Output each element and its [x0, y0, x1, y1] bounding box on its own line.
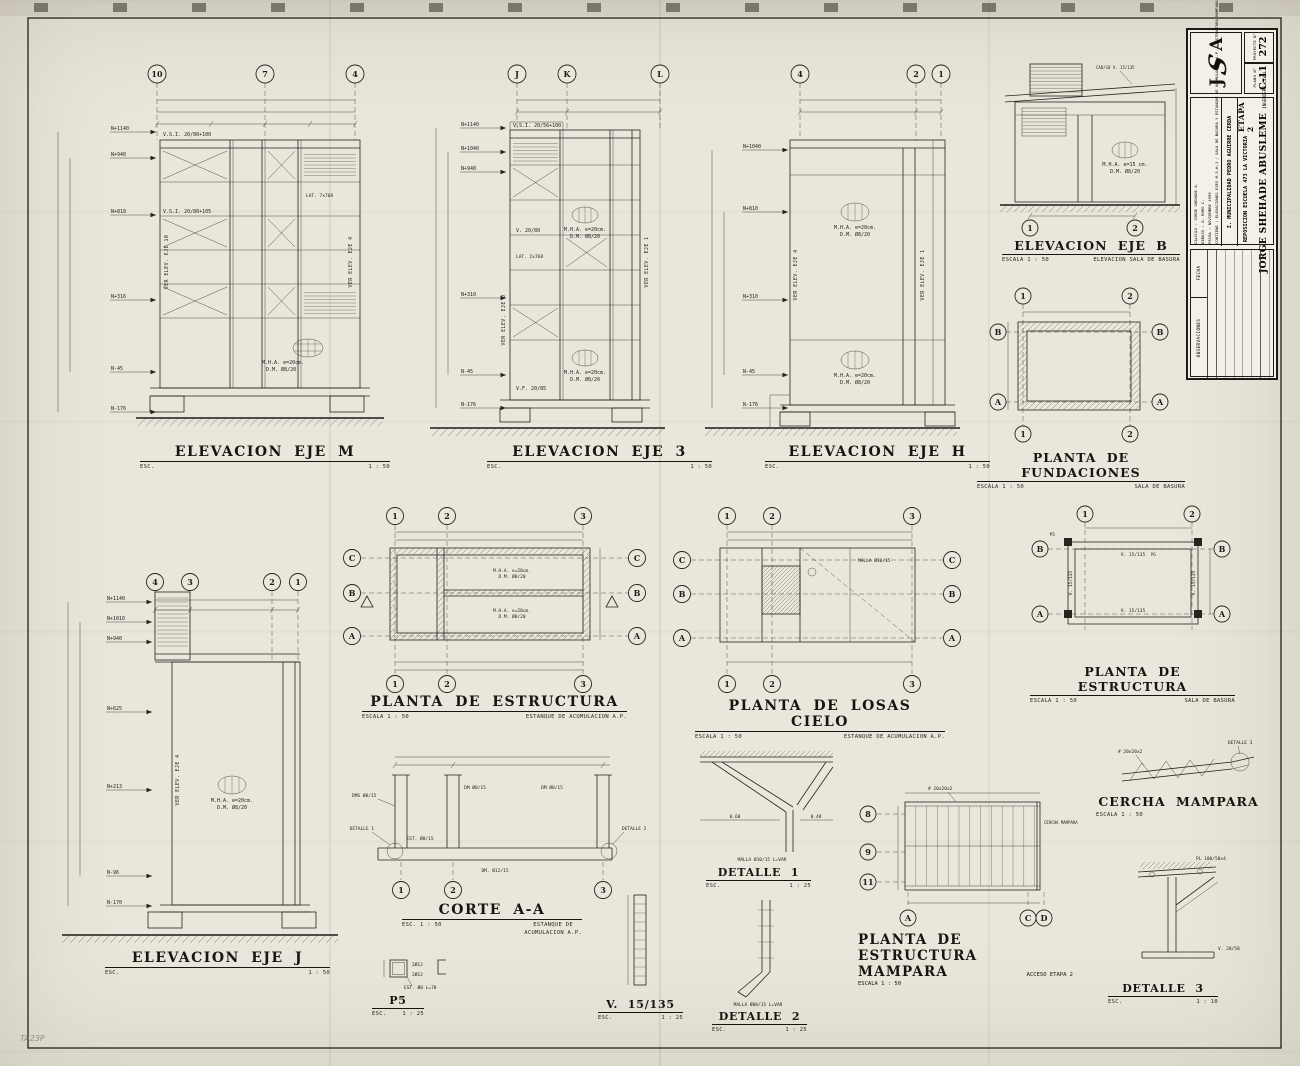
esc-label: ESC. [372, 1010, 386, 1018]
beam-note: V.S.I. 20/80+105 [163, 209, 211, 215]
svg-text:3: 3 [580, 511, 586, 521]
mha-note: D.M. Ø8/20 [570, 233, 600, 240]
grid-bubbles: 12 [1077, 506, 1200, 522]
escala-label: ESCALA 1 : 50 [1002, 256, 1049, 264]
scale-value: 1 : 25 [789, 882, 811, 890]
observaciones-column-header: OBSERVACIONES [1197, 319, 1202, 358]
contiene-field: CONTIENE : ELEVACIONES EJES M-3-H-J / SA… [1214, 0, 1219, 244]
svg-text:A: A [678, 633, 686, 643]
rebar-note: DMS Ø8/15 [352, 792, 377, 799]
grid-bubbles: CBA [344, 550, 361, 645]
panel-title: CORTE A-A [402, 902, 582, 920]
mha-note: D.M. Ø8/20 [217, 804, 247, 811]
svg-text:N+810: N+810 [743, 206, 758, 212]
subtitle: ESTANQUE DE ACUMULACION A.P. [844, 733, 945, 741]
lat-note: LAT. 7x768 [306, 193, 333, 199]
svg-text:1: 1 [1020, 291, 1026, 301]
hatch-lateral [513, 144, 558, 162]
hatch-lateral [304, 155, 356, 176]
panel-title: DETALLE 2 [712, 1010, 807, 1025]
wall-hatch [583, 555, 590, 633]
hatch-window [1022, 112, 1066, 133]
cercha-note: CERCHA MAMPARA [1044, 820, 1078, 825]
cad-note: CAD/10 V. 15/135 [1096, 65, 1135, 70]
esc-label: ESC. [765, 463, 779, 471]
svg-text:2: 2 [913, 69, 919, 79]
svg-text:N+1040: N+1040 [743, 144, 761, 150]
svg-text:A: A [904, 913, 912, 923]
mha-note: M.H.A. e=20cm. [211, 798, 253, 804]
svg-text:3: 3 [600, 885, 606, 895]
panel-title: ELEVACION EJE 3 [487, 444, 712, 462]
wall-hatch [1018, 322, 1140, 331]
viga-note: V. 15/135 [1068, 571, 1074, 596]
svg-text:3: 3 [580, 679, 586, 689]
svg-text:2: 2 [1127, 429, 1133, 439]
svg-text:8: 8 [865, 809, 871, 819]
svg-text:N+940: N+940 [461, 166, 476, 172]
dim-label: 0.60 [730, 814, 741, 820]
column-p5 [1194, 538, 1202, 546]
svg-text:4: 4 [797, 69, 803, 79]
mha-note: M.H.A. e=20cm. [564, 227, 606, 233]
detail-ref: DETALLE 2 [622, 826, 647, 832]
cliente-strip: I. MUNICIPALIDAD PEDRO AGUIRRE CERDA [1221, 98, 1237, 246]
profile-note: # 20x20x2 [1118, 749, 1143, 755]
title-detalle-1: DETALLE 1 ESC.1 : 25 [706, 866, 811, 890]
svg-text:N-176: N-176 [461, 402, 476, 408]
svg-text:4: 4 [352, 69, 358, 79]
profile-note: # 20x20x2 [928, 786, 953, 792]
subtitle: SALA DE BASURA [1134, 483, 1185, 491]
svg-text:N+1140: N+1140 [461, 122, 479, 128]
title-planta-mampara: PLANTA DE ESTRUCTURA MAMPARA ACCESO ETAP… [858, 932, 1073, 987]
grid-bubbles: 1074 [148, 65, 364, 83]
grid-bubbles: 123 [387, 676, 592, 693]
panel-title: PLANTA DE ESTRUCTURA [1030, 664, 1235, 696]
esc-label: ESC. [1108, 998, 1122, 1006]
rebar-note: 2Ø12 [412, 971, 423, 978]
svg-text:N+310: N+310 [743, 294, 758, 300]
hatch-parapet [1030, 68, 1082, 93]
escala-label: ESCALA 1 : 50 [977, 483, 1024, 491]
level-markers: N+1140N+1040N+940N+310N-45N-176 [460, 122, 506, 410]
corner-pencil-mark: TA23P [20, 1034, 45, 1043]
hatch-slab [700, 751, 833, 757]
title-elev-3: ELEVACION EJE 3 ESC.1 : 50 [487, 444, 712, 471]
proyecto-no-label: PROYECTO N° [1252, 33, 1257, 60]
panel-title: ELEVACION EJE B [1002, 238, 1180, 255]
pg-ref: PG [1151, 552, 1156, 557]
ver-elev-note: VER ELEV. EJE 10 [164, 235, 170, 290]
grid-bubbles: 8911 [860, 806, 876, 890]
beam-note: V.S.I. 20/80+100 [163, 132, 211, 138]
panel-planta-mampara: 8911 # 20x20x2 CERCHA MAMPARA ACD [860, 786, 1078, 926]
panel-planta-estructura-estanque: 123 123 CBA CBA M.H.A. e=20cm. D.M. Ø8/2… [344, 508, 646, 693]
title-elev-h: ELEVACION EJE H ESC.1 : 50 [765, 444, 990, 471]
svg-text:N-176: N-176 [743, 402, 758, 408]
title-corte-aa: CORTE A-A ESC. 1 : 50 ESTANQUE DEACUMULA… [402, 902, 582, 938]
panel-title: ELEVACION EJE H [765, 444, 990, 462]
svg-text:B: B [1219, 544, 1226, 554]
beam-note: V. 20/80 [516, 228, 540, 234]
svg-text:1: 1 [398, 885, 404, 895]
panel-p5: 2Ø12 2Ø12 EST. Ø8 L=70 [384, 960, 446, 991]
ver-elev-note: VER ELEV. EJE 4 [793, 249, 799, 300]
grid-bubbles: BA [1214, 541, 1230, 622]
hatch-parapet [157, 598, 188, 646]
svg-text:2: 2 [769, 511, 775, 521]
main-info-box: JORGE SHEHADE ABUSLEME INGENIERO CIVIL R… [1190, 97, 1274, 245]
svg-text:1: 1 [392, 679, 398, 689]
panel-title: PLANTA DE ESTRUCTURA [858, 932, 1073, 964]
title-detalle-2: DETALLE 2 ESC.1 : 25 [712, 1010, 807, 1034]
title-planta-fundaciones: PLANTA DE FUNDACIONES ESCALA 1 : 50SALA … [977, 450, 1185, 491]
rebar-note: DM Ø8/15 [464, 784, 486, 791]
drawing-sheet: 1074 M.H.A. e=20cm. [0, 0, 1300, 1066]
title-block: J S A PROYECTO N° 272 PLANO N° C-11 JO [1186, 28, 1278, 380]
grid-bubbles: BA [1152, 324, 1168, 410]
drawing-linework: 1074 M.H.A. e=20cm. [0, 0, 1300, 1066]
esc-label: ESC. [105, 969, 119, 977]
rebar-note: DM Ø8/15 [541, 784, 563, 791]
wall-hatch [437, 555, 444, 633]
svg-text:2: 2 [269, 577, 275, 587]
svg-text:N+1010: N+1010 [107, 616, 125, 622]
mha-note: M.H.A. e=20cm. [493, 568, 531, 574]
svg-text:A: A [1218, 609, 1226, 619]
fields-strip: CALCULO : JORGE SHEHADE A. DIBUJO : A. R… [1191, 98, 1221, 246]
escala-label: ESCALA 1 : 50 [858, 981, 1073, 987]
panel-title: ELEVACION EJE M [140, 444, 390, 462]
panel-elevacion-eje-3: JKL M.H.A. e=20cm. D.M. Ø8/20 M.H.A. e=2… [430, 65, 669, 436]
svg-text:11: 11 [862, 877, 873, 887]
svg-text:1: 1 [295, 577, 301, 587]
panel-planta-estructura-basura: 12 BA BA V. 15/135 V. 15/135 V. 15/135 V… [1032, 506, 1230, 630]
mha-note: D.M. Ø8/20 [498, 613, 525, 620]
svg-text:N+310: N+310 [461, 292, 476, 298]
esc-label: ESC. [712, 1026, 726, 1034]
panel-title: ELEVACION EJE J [105, 950, 330, 968]
panel-title: PLANTA DE ESTRUCTURA [362, 694, 627, 712]
svg-text:2: 2 [444, 679, 450, 689]
column-p5 [1194, 610, 1202, 618]
sheet-border [28, 18, 1281, 1048]
escala-label: ESCALA 1 : 50 [695, 733, 742, 741]
rebar-note: DM. Ø12/15 [481, 867, 508, 874]
subtitle: ACUMULACION A.P. [524, 929, 582, 937]
grid-bubbles: 123 [387, 508, 592, 525]
title-detalle-3: DETALLE 3 ESC.1 : 10 [1108, 982, 1218, 1006]
column-p5 [1064, 538, 1072, 546]
observations-table: FECHA OBSERVACIONES [1190, 249, 1274, 377]
grid-bubbles: 12 [1015, 426, 1138, 442]
svg-text:N-45: N-45 [111, 366, 123, 372]
wall-hatch [390, 633, 590, 640]
escala-label: ESCALA 1 : 50 [1030, 697, 1077, 705]
svg-text:2: 2 [450, 885, 456, 895]
svg-text:2: 2 [1132, 223, 1138, 233]
detail-ref: DETALLE 3 [1228, 740, 1253, 746]
grid-bubbles: 123 [719, 508, 921, 525]
svg-text:7: 7 [262, 69, 268, 79]
profile-sketch [438, 960, 446, 974]
panel-title: PLANTA DE FUNDACIONES [977, 450, 1185, 482]
dibujo-field: DIBUJO : A. ROMO C. [1200, 199, 1205, 244]
engineer-title: INGENIERO CIVIL [1262, 71, 1267, 109]
viga-note: V. 15/135 [1191, 571, 1197, 596]
ver-elev-note: VER ELEV. EJE 1 [920, 249, 926, 300]
esc-label: ESC. [598, 1014, 612, 1022]
beam-note: V. 20/50 [1218, 946, 1240, 952]
cliente-value: I. MUNICIPALIDAD PEDRO AGUIRRE CERDA [1227, 116, 1233, 228]
grid-bubbles: CBA [629, 550, 646, 645]
panel-planta-fundaciones: 12 12 BA BA [990, 288, 1168, 442]
svg-text:N+316: N+316 [111, 294, 126, 300]
ladder-rungs [634, 904, 646, 976]
svg-text:N+625: N+625 [107, 706, 122, 712]
scale-value: 1 : 50 [690, 463, 712, 471]
scale-value: 1 : 25 [785, 1026, 807, 1034]
svg-text:B: B [1157, 327, 1164, 337]
detail-ref: DETALLE 1 [350, 826, 375, 832]
svg-text:A: A [633, 631, 641, 641]
observaciones-header-cell: OBSERVACIONES [1191, 298, 1207, 378]
svg-text:1: 1 [392, 511, 398, 521]
svg-text:N+1040: N+1040 [461, 146, 479, 152]
svg-text:1: 1 [1020, 429, 1026, 439]
p5-ref: P5 [1050, 532, 1056, 538]
svg-text:N-96: N-96 [107, 870, 119, 876]
svg-text:9: 9 [865, 847, 871, 857]
svg-text:N-45: N-45 [461, 369, 473, 375]
lat-note: LAT. 2x768 [516, 254, 543, 260]
svg-text:B: B [949, 589, 956, 599]
grid-bubbles: 12 [1015, 288, 1138, 304]
rebar-note: 2Ø12 [412, 961, 423, 968]
plano-numero-cell: PLANO N° C-11 [1244, 63, 1274, 94]
ground-hatch [138, 418, 382, 426]
svg-text:4: 4 [152, 577, 158, 587]
panel-title: V. 15/135 [598, 998, 683, 1013]
rebar-note: EST. Ø8 L=70 [404, 984, 437, 991]
svg-text:1: 1 [724, 679, 730, 689]
panel-detalle-2: MALLA Ø08/15 L=VAR [734, 900, 783, 1008]
grid-bubbles: JKL [508, 65, 669, 83]
ver-elev-note: VER ELEV. EJE J [501, 294, 507, 345]
ground-hatch [62, 935, 338, 943]
level-markers: N+1040N+810N+310N-45N-176 [742, 144, 788, 410]
mha-note: D.M. Ø8/20 [1110, 168, 1140, 175]
svg-text:B: B [995, 327, 1002, 337]
subtitle: ESTANQUE DE [524, 921, 582, 929]
plate-note: PL 100/50x4 [1196, 856, 1226, 862]
table-rule-lines [1207, 250, 1273, 378]
viga-note: V. 15/135 [1121, 608, 1146, 614]
title-planta-losas: PLANTA DE LOSAS CIELO ESCALA 1 : 50ESTAN… [695, 698, 945, 741]
proyecto-no-value: 272 [1258, 37, 1269, 57]
escala-label: ESCALA 1 : 50 [1096, 811, 1143, 819]
svg-text:J: J [514, 69, 519, 79]
svg-text:1: 1 [724, 511, 730, 521]
engineer-strip: JORGE SHEHADE ABUSLEME INGENIERO CIVIL [1253, 98, 1275, 246]
mha-note: M.H.A. e=15 cm. [1102, 162, 1147, 168]
svg-text:D: D [1041, 913, 1048, 923]
grid-bubbles: CBA [944, 552, 961, 647]
malla-note: MALLA Ø08/15 L=VAR [734, 1001, 783, 1008]
rebar-note: EST. Ø8/15 [406, 835, 433, 842]
svg-text:N+1140: N+1140 [111, 126, 129, 132]
svg-text:B: B [634, 588, 641, 598]
plano-no-label: PLANO N° [1252, 68, 1257, 88]
panel-title: CERCHA MAMPARA [1096, 794, 1261, 810]
malla-note: MALLA Ø10/15 [858, 557, 891, 564]
grid-bubbles: 421 [791, 65, 950, 83]
scale-value: 1 : 25 [661, 1014, 683, 1022]
mha-note: M.H.A. e=20cm. [564, 370, 606, 376]
esc-label: ESC. [487, 463, 501, 471]
esc-label: ESC. [140, 463, 154, 471]
title-p5: P5 ESC.1 : 25 [372, 994, 424, 1018]
panel-title: DETALLE 3 [1108, 982, 1218, 997]
level-markers: N+1140N+940N+818N+316N-45N-176 [110, 126, 156, 414]
svg-text:N+940: N+940 [107, 636, 122, 642]
mha-note: M.H.A. e=20cm. [834, 373, 876, 379]
svg-text:N-176: N-176 [111, 406, 126, 412]
scale-value: 1 : 50 [368, 463, 390, 471]
svg-text:N-170: N-170 [107, 900, 122, 906]
svg-text:1: 1 [938, 69, 944, 79]
svg-text:2: 2 [1189, 509, 1195, 519]
dim-label: 0.48 [811, 814, 822, 820]
panel-detalle-3: PL 100/50x4 V. 20/50 [1138, 856, 1240, 958]
svg-text:2: 2 [769, 679, 775, 689]
svg-text:N+213: N+213 [107, 784, 122, 790]
grid-bubbles: 12 [1022, 220, 1143, 236]
panel-title: MAMPARA [858, 964, 948, 980]
malla-note: MALLA Ø10/15 L=VAR [738, 856, 787, 863]
esc-label: ESC. [706, 882, 720, 890]
ver-elev-note: VER ELEV. EJE 4 [175, 754, 181, 805]
ground-hatch [705, 428, 957, 436]
svg-text:L: L [657, 69, 663, 79]
svg-text:10: 10 [151, 69, 163, 79]
title-planta-estructura-basura: PLANTA DE ESTRUCTURA ESCALA 1 : 50SALA D… [1030, 664, 1235, 705]
etapa-cell: ETAPA 2 [1237, 98, 1253, 132]
svg-text:A: A [348, 631, 356, 641]
esc-label: ESC. 1 : 50 [402, 921, 442, 938]
svg-text:3: 3 [909, 679, 915, 689]
proyecto-value: REPOSICION ESCUELA 473 LA VICTORIA [1243, 136, 1249, 242]
proyecto-numero-cell: PROYECTO N° 272 [1244, 32, 1274, 63]
svg-text:A: A [994, 397, 1002, 407]
svg-text:C: C [679, 555, 685, 565]
wall-hatch [390, 548, 590, 555]
title-cercha-mampara: CERCHA MAMPARA ESCALA 1 : 50 [1096, 794, 1261, 819]
svg-text:B: B [349, 588, 356, 598]
panel-detalle-1: 0.60 0.48 MALLA Ø10/15 L=VAR [700, 751, 833, 863]
grid-bubbles: BA [1032, 541, 1048, 622]
column-p5 [1064, 610, 1072, 618]
warning-triangle [361, 596, 373, 607]
panel-corte-a-a: DMS Ø8/15 DM Ø8/15 DM Ø8/15 EST. Ø8/15 D… [350, 757, 647, 899]
mha-note: D.M. Ø8/20 [498, 573, 525, 580]
wall-hatch [390, 555, 397, 633]
ver-elev-note: VER ELEV. EJE 1 [644, 236, 650, 287]
svg-text:N+818: N+818 [111, 209, 126, 215]
svg-text:N+940: N+940 [111, 152, 126, 158]
warning-triangle [606, 596, 618, 607]
svg-text:A: A [1156, 397, 1164, 407]
panel-title: DETALLE 1 [706, 866, 811, 881]
mha-note: D.M. Ø8/20 [266, 366, 296, 373]
panel-cercha-mampara: DETALLE 3 # 20x20x2 [1118, 740, 1254, 781]
subtitle: ACCESO ETAPA 2 [1027, 972, 1073, 978]
mha-note: D.M. Ø8/20 [840, 231, 870, 238]
svg-text:A: A [1036, 609, 1044, 619]
calculo-field: CALCULO : JORGE SHEHADE A. [1193, 183, 1198, 244]
svg-text:N-45: N-45 [743, 369, 755, 375]
panel-elevacion-eje-b: CAD/10 V. 15/135 M.H.A. e=15 cm. D.M. Ø8… [1000, 64, 1180, 236]
svg-text:A: A [948, 633, 956, 643]
title-elev-m: ELEVACION EJE M ESC.1 : 50 [140, 444, 390, 471]
svg-text:C: C [634, 553, 640, 563]
fecha-header-cell: FECHA [1191, 250, 1207, 298]
panel-elevacion-eje-j: 4321 M.H.A. e=20cm. D.M. Ø8/20 N+1140N+1… [62, 574, 338, 944]
subtitle: ELEVACION SALA DE BASURA [1093, 256, 1180, 264]
ground-hatch [1000, 205, 1180, 212]
subtitle: SALA DE BASURA [1184, 697, 1235, 705]
panel-elevacion-eje-h: 421 M.H.A. e=20cm. D.M. Ø8/20 M.H.A. e=2… [705, 65, 960, 436]
svg-text:2: 2 [444, 511, 450, 521]
level-markers: N+1140N+1010N+940N+625N+213N-96N-170 [106, 596, 152, 908]
ground-hatch [432, 428, 664, 436]
svg-text:B: B [679, 589, 686, 599]
escala-label: ESCALA 1 : 50 [362, 713, 409, 721]
mha-note: D.M. Ø8/20 [570, 376, 600, 383]
svg-text:C: C [349, 553, 355, 563]
svg-text:3: 3 [909, 511, 915, 521]
hatch-shaft [762, 566, 800, 614]
mha-note: M.H.A. e=20cm. [262, 360, 304, 366]
title-elev-b: ELEVACION EJE B ESCALA 1 : 50ELEVACION S… [1002, 238, 1180, 264]
grid-bubbles: 123 [719, 676, 921, 693]
scale-value: 1 : 25 [402, 1010, 424, 1018]
scale-value: 1 : 50 [308, 969, 330, 977]
grid-bubbles: 4321 [147, 574, 307, 591]
proyecto-strip: REPOSICION ESCUELA 473 LA VICTORIA [1237, 132, 1253, 246]
svg-text:K: K [564, 69, 572, 79]
beam-note: V.S.I. 20/56+100 [513, 123, 561, 129]
svg-text:C: C [949, 555, 955, 565]
wall-hatch [1131, 331, 1140, 401]
fecha-field: FECHA : NOVIEMBRE 1999 [1207, 192, 1212, 244]
hatch-lateral [304, 293, 356, 314]
title-v15: V. 15/135 ESC.1 : 25 [598, 998, 683, 1022]
svg-text:1: 1 [1082, 509, 1088, 519]
title-elev-j: ELEVACION EJE J ESC.1 : 50 [105, 950, 330, 977]
title-planta-estructura-estanque: PLANTA DE ESTRUCTURA ESCALA 1 : 50ESTANQ… [362, 694, 627, 721]
grid-bubbles: BA [990, 324, 1006, 410]
wall-hatch [1018, 401, 1140, 410]
viga-note: V. 15/135 [1121, 552, 1146, 558]
panel-elevacion-eje-m: 1074 M.H.A. e=20cm. [58, 65, 384, 426]
panel-v15-135 [628, 895, 646, 985]
fecha-column-header: FECHA [1197, 266, 1202, 281]
mha-note: M.H.A. e=20cm. [493, 608, 531, 614]
mha-note: D.M. Ø8/20 [840, 379, 870, 386]
svg-text:B: B [1037, 544, 1044, 554]
